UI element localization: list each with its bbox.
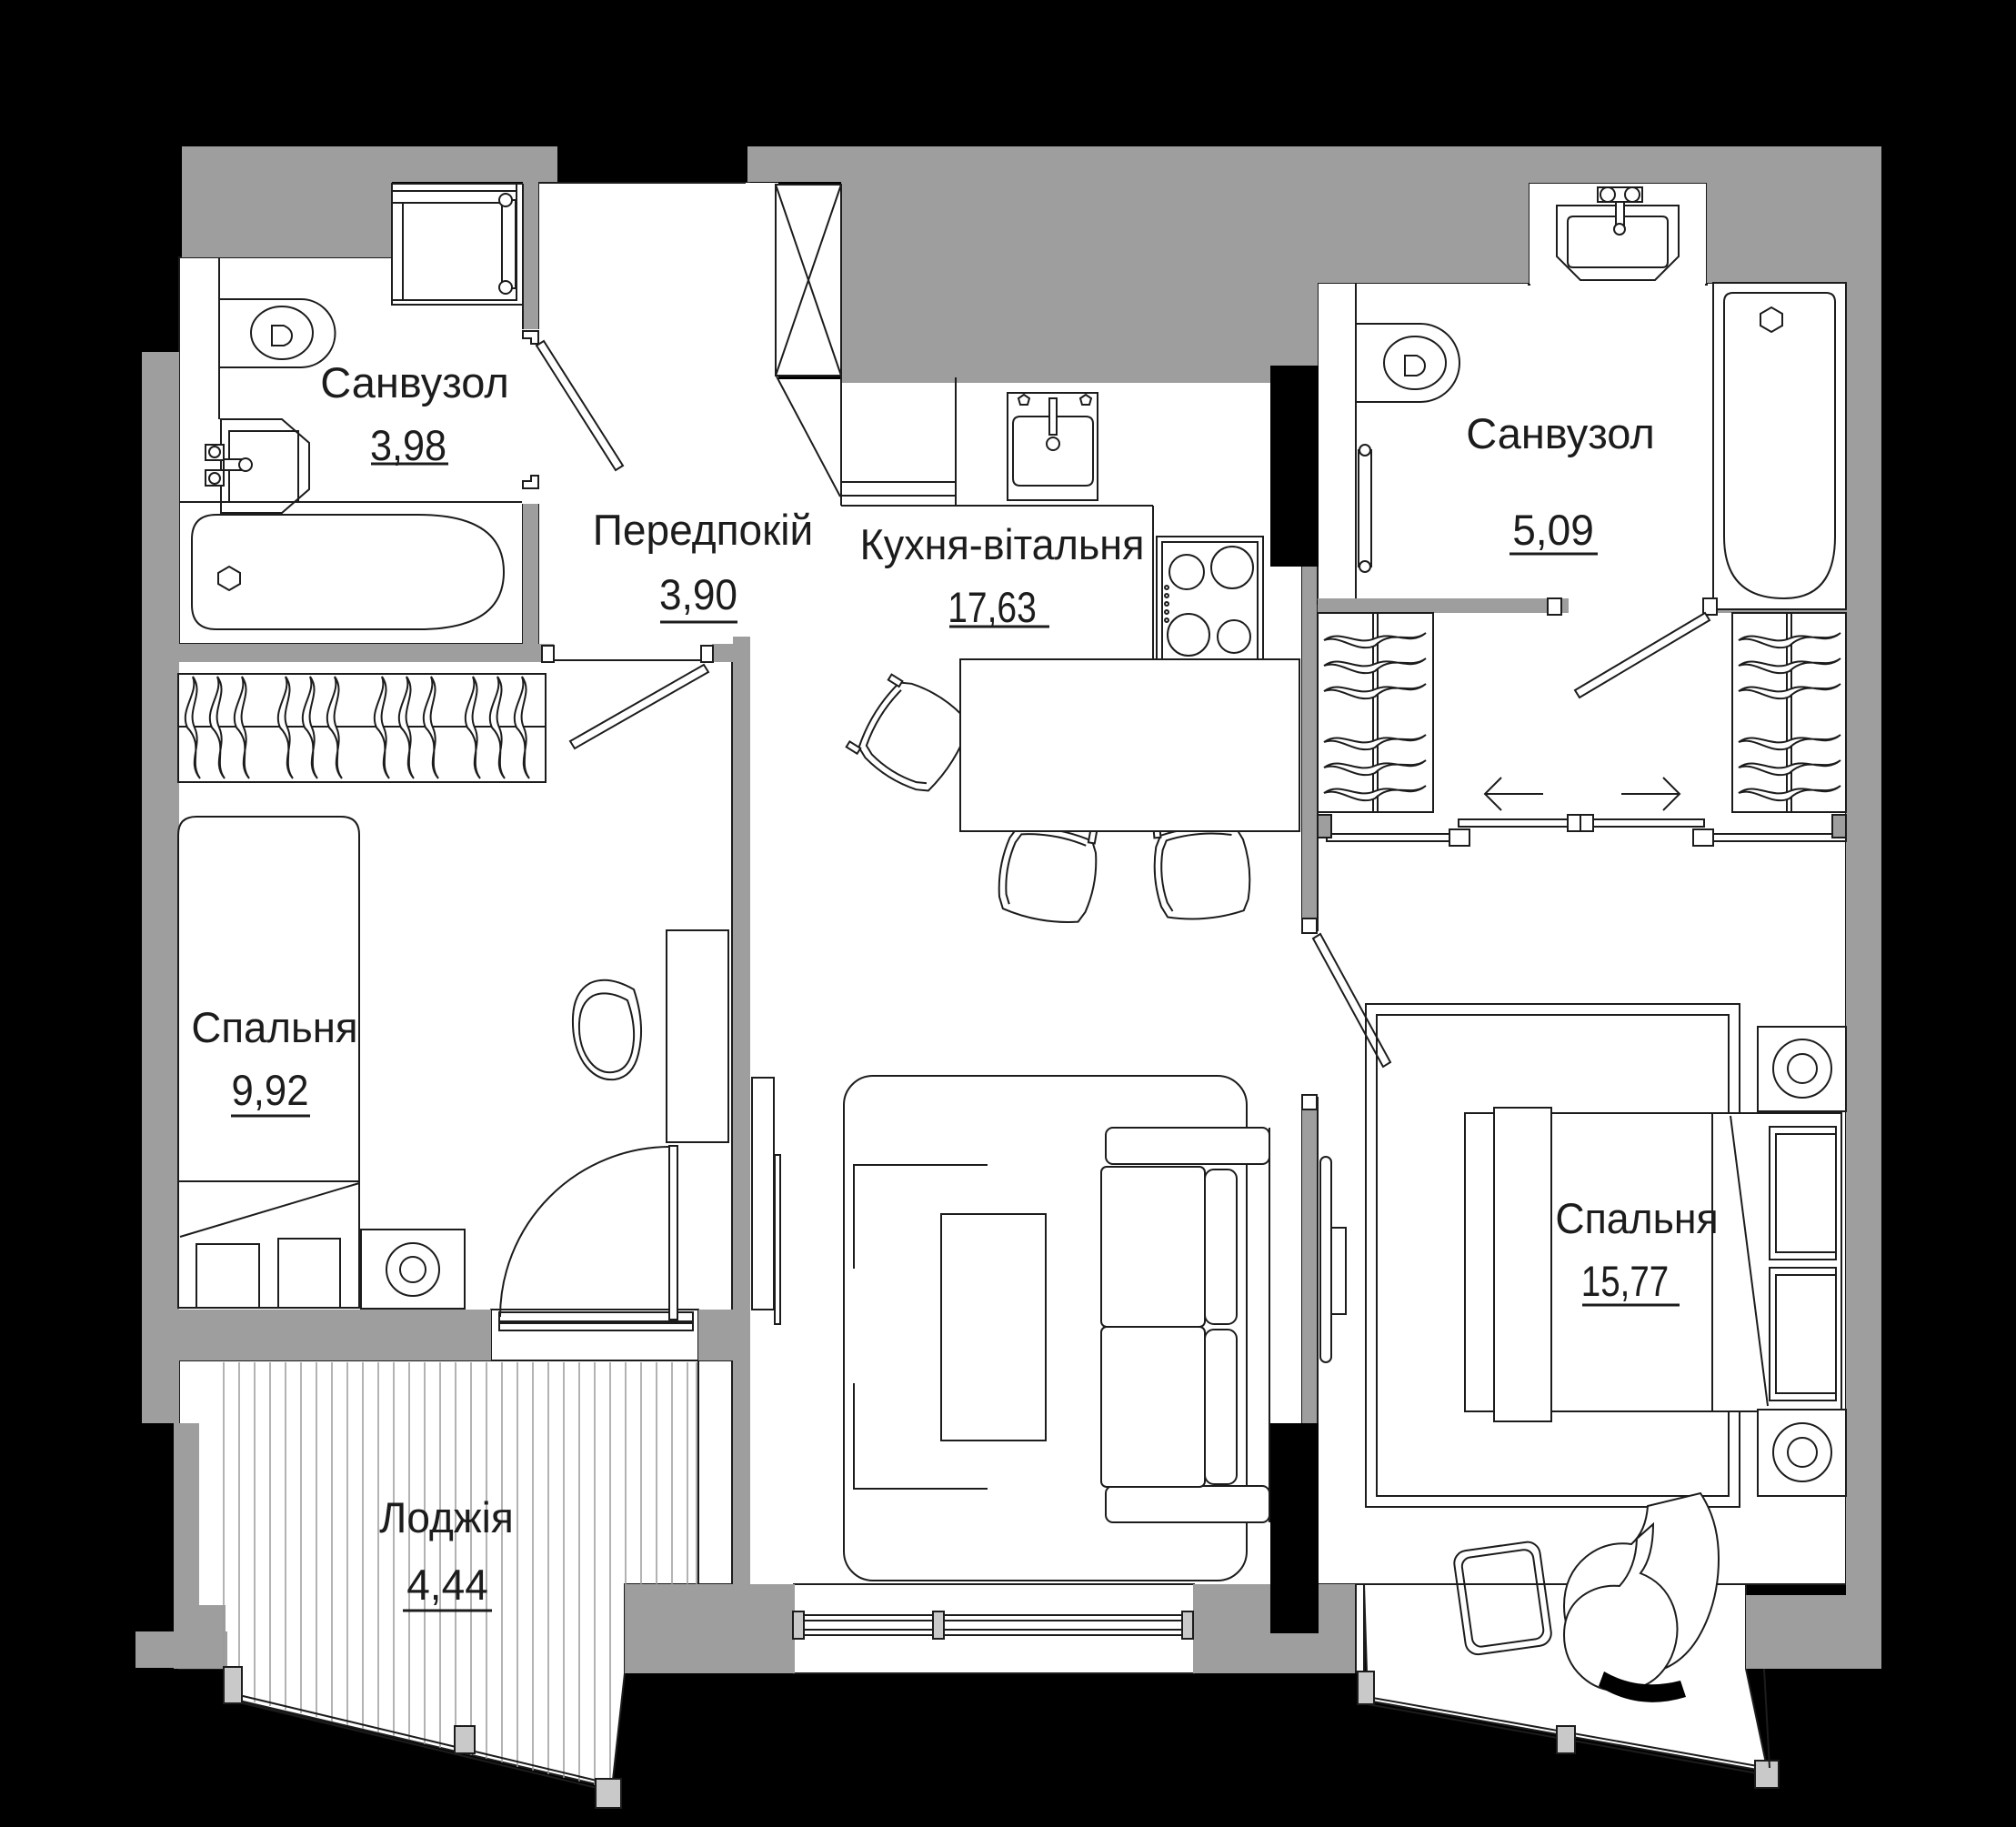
svg-text:Санвузол: Санвузол: [1466, 409, 1655, 457]
svg-text:Санвузол: Санвузол: [320, 358, 509, 407]
svg-text:Кухня-вітальня: Кухня-вітальня: [860, 520, 1145, 568]
svg-text:3,98: 3,98: [370, 421, 446, 469]
svg-text:4,44: 4,44: [406, 1561, 488, 1610]
svg-text:Передпокій: Передпокій: [593, 507, 813, 555]
svg-text:Спальня: Спальня: [191, 1003, 357, 1051]
svg-text:9,92: 9,92: [231, 1067, 308, 1115]
svg-text:3,90: 3,90: [659, 571, 737, 619]
svg-text:Спальня: Спальня: [1555, 1195, 1718, 1242]
svg-text:Лоджія: Лоджія: [379, 1494, 514, 1542]
svg-text:5,09: 5,09: [1512, 507, 1594, 555]
svg-text:17,63: 17,63: [948, 585, 1037, 632]
svg-text:15,77: 15,77: [1581, 1258, 1669, 1305]
